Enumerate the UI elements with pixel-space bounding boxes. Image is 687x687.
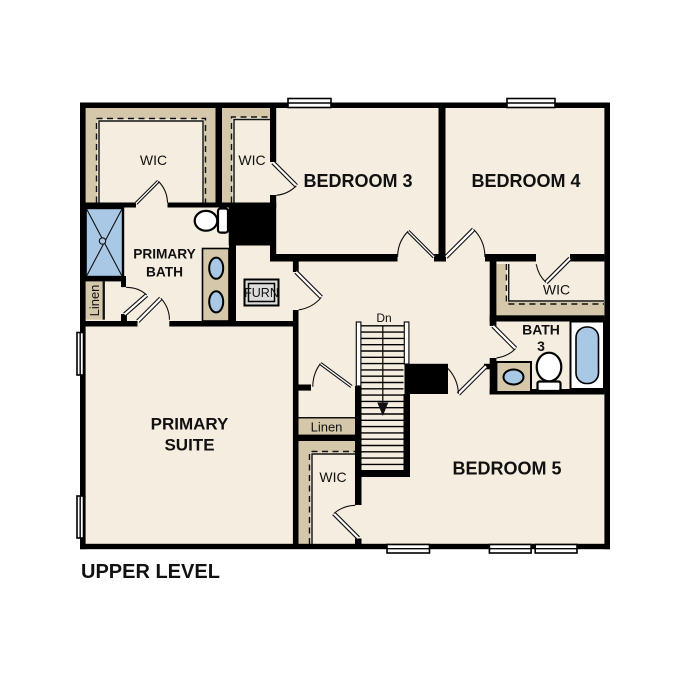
svg-text:Linen: Linen — [87, 285, 102, 317]
svg-text:WIC: WIC — [140, 152, 167, 168]
svg-text:UPPER LEVEL: UPPER LEVEL — [81, 561, 220, 583]
svg-text:Linen: Linen — [311, 420, 343, 435]
svg-text:WIC: WIC — [319, 469, 346, 485]
svg-text:WIC: WIC — [238, 152, 265, 168]
svg-text:BEDROOM 4: BEDROOM 4 — [471, 171, 580, 191]
svg-text:3: 3 — [537, 338, 545, 354]
svg-text:BEDROOM 3: BEDROOM 3 — [303, 171, 412, 191]
svg-text:Dn: Dn — [376, 311, 391, 325]
svg-text:SUITE: SUITE — [164, 436, 214, 455]
svg-text:PRIMARY: PRIMARY — [151, 415, 229, 434]
svg-text:BEDROOM 5: BEDROOM 5 — [452, 459, 561, 479]
svg-text:FURN: FURN — [244, 286, 279, 300]
svg-text:BATH: BATH — [522, 322, 560, 338]
svg-text:PRIMARY: PRIMARY — [133, 247, 196, 262]
svg-text:BATH: BATH — [146, 265, 183, 280]
svg-text:WIC: WIC — [543, 282, 570, 298]
